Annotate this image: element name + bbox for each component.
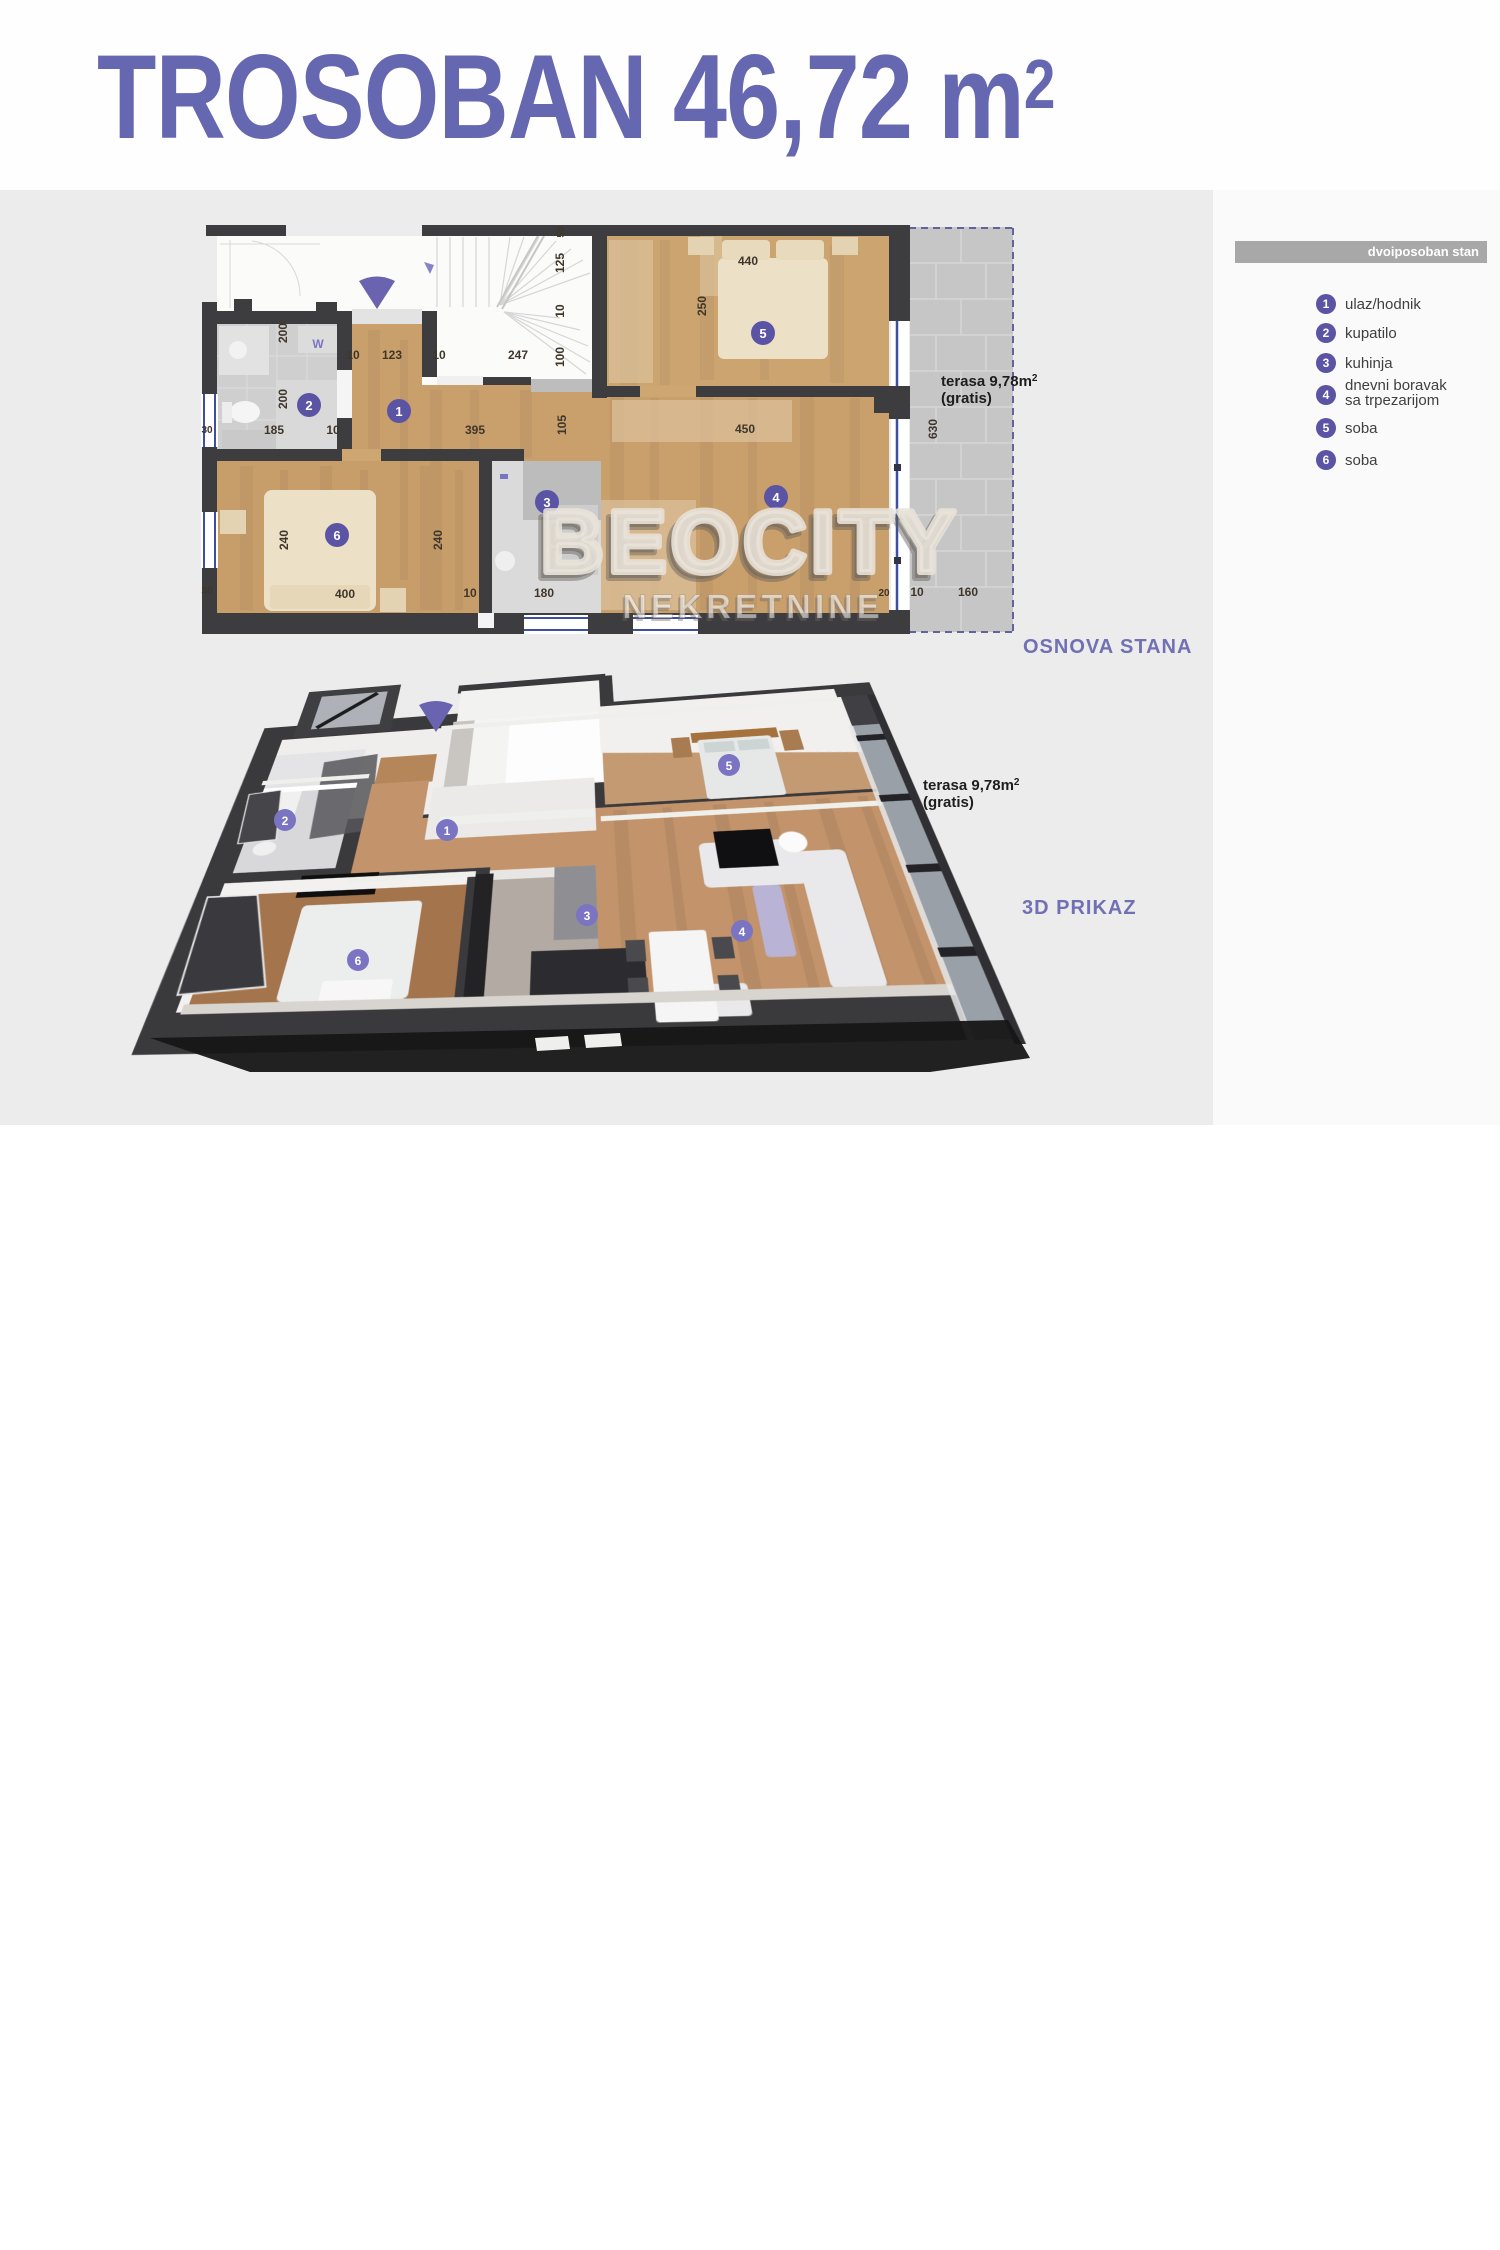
svg-text:10: 10 (346, 348, 360, 362)
svg-text:5: 5 (1323, 421, 1330, 435)
svg-text:3: 3 (1323, 356, 1330, 370)
svg-text:450: 450 (735, 422, 755, 436)
svg-text:sa trpezarijom: sa trpezarijom (1345, 392, 1439, 409)
svg-text:400: 400 (335, 587, 355, 601)
svg-text:6: 6 (1323, 453, 1330, 467)
svg-text:2: 2 (1323, 326, 1330, 340)
svg-text:terasa 9,78m2: terasa 9,78m2 (923, 777, 1020, 794)
svg-text:3: 3 (584, 909, 591, 923)
svg-text:30: 30 (201, 425, 213, 436)
svg-text:ulaz/hodnik: ulaz/hodnik (1345, 296, 1421, 313)
svg-text:NEKRETNINE: NEKRETNINE (622, 588, 883, 626)
svg-text:BEOCITY: BEOCITY (540, 492, 959, 591)
svg-text:10: 10 (326, 423, 340, 437)
svg-text:30: 30 (201, 586, 213, 597)
svg-text:3D PRIKAZ: 3D PRIKAZ (1022, 897, 1137, 919)
svg-text:(gratis): (gratis) (923, 794, 974, 811)
svg-text:terasa 9,78m2: terasa 9,78m2 (941, 373, 1038, 390)
svg-text:200: 200 (276, 389, 290, 409)
svg-text:440: 440 (738, 254, 758, 268)
svg-text:1: 1 (1323, 297, 1330, 311)
svg-text:240: 240 (277, 530, 291, 550)
svg-text:kupatilo: kupatilo (1345, 325, 1397, 342)
svg-text:100: 100 (553, 347, 567, 367)
svg-text:soba: soba (1345, 452, 1378, 469)
svg-text:395: 395 (465, 423, 485, 437)
svg-text:kuhinja: kuhinja (1345, 355, 1393, 372)
svg-text:6: 6 (355, 954, 362, 968)
svg-text:4: 4 (739, 925, 746, 939)
svg-text:soba: soba (1345, 420, 1378, 437)
svg-text:(gratis): (gratis) (941, 390, 992, 407)
svg-text:125: 125 (553, 253, 567, 273)
svg-text:5: 5 (726, 759, 733, 773)
svg-text:247: 247 (508, 348, 528, 362)
svg-text:250: 250 (695, 296, 709, 316)
svg-text:10: 10 (463, 586, 477, 600)
svg-text:2: 2 (305, 398, 312, 413)
svg-text:200: 200 (276, 323, 290, 343)
svg-text:2: 2 (282, 814, 289, 828)
svg-text:10: 10 (432, 348, 446, 362)
svg-text:50: 50 (556, 226, 567, 238)
svg-text:1: 1 (395, 404, 402, 419)
svg-text:4: 4 (1323, 388, 1330, 402)
svg-text:1: 1 (444, 824, 451, 838)
svg-text:dvoiposoban stan: dvoiposoban stan (1368, 244, 1479, 259)
svg-text:630: 630 (926, 419, 940, 439)
svg-text:123: 123 (382, 348, 402, 362)
svg-text:5: 5 (759, 326, 766, 341)
svg-text:10: 10 (553, 304, 567, 318)
svg-text:105: 105 (555, 415, 569, 435)
svg-text:160: 160 (958, 585, 978, 599)
svg-text:OSNOVA STANA: OSNOVA STANA (1023, 636, 1192, 658)
svg-text:185: 185 (264, 423, 284, 437)
svg-text:6: 6 (333, 528, 340, 543)
svg-text:240: 240 (431, 530, 445, 550)
